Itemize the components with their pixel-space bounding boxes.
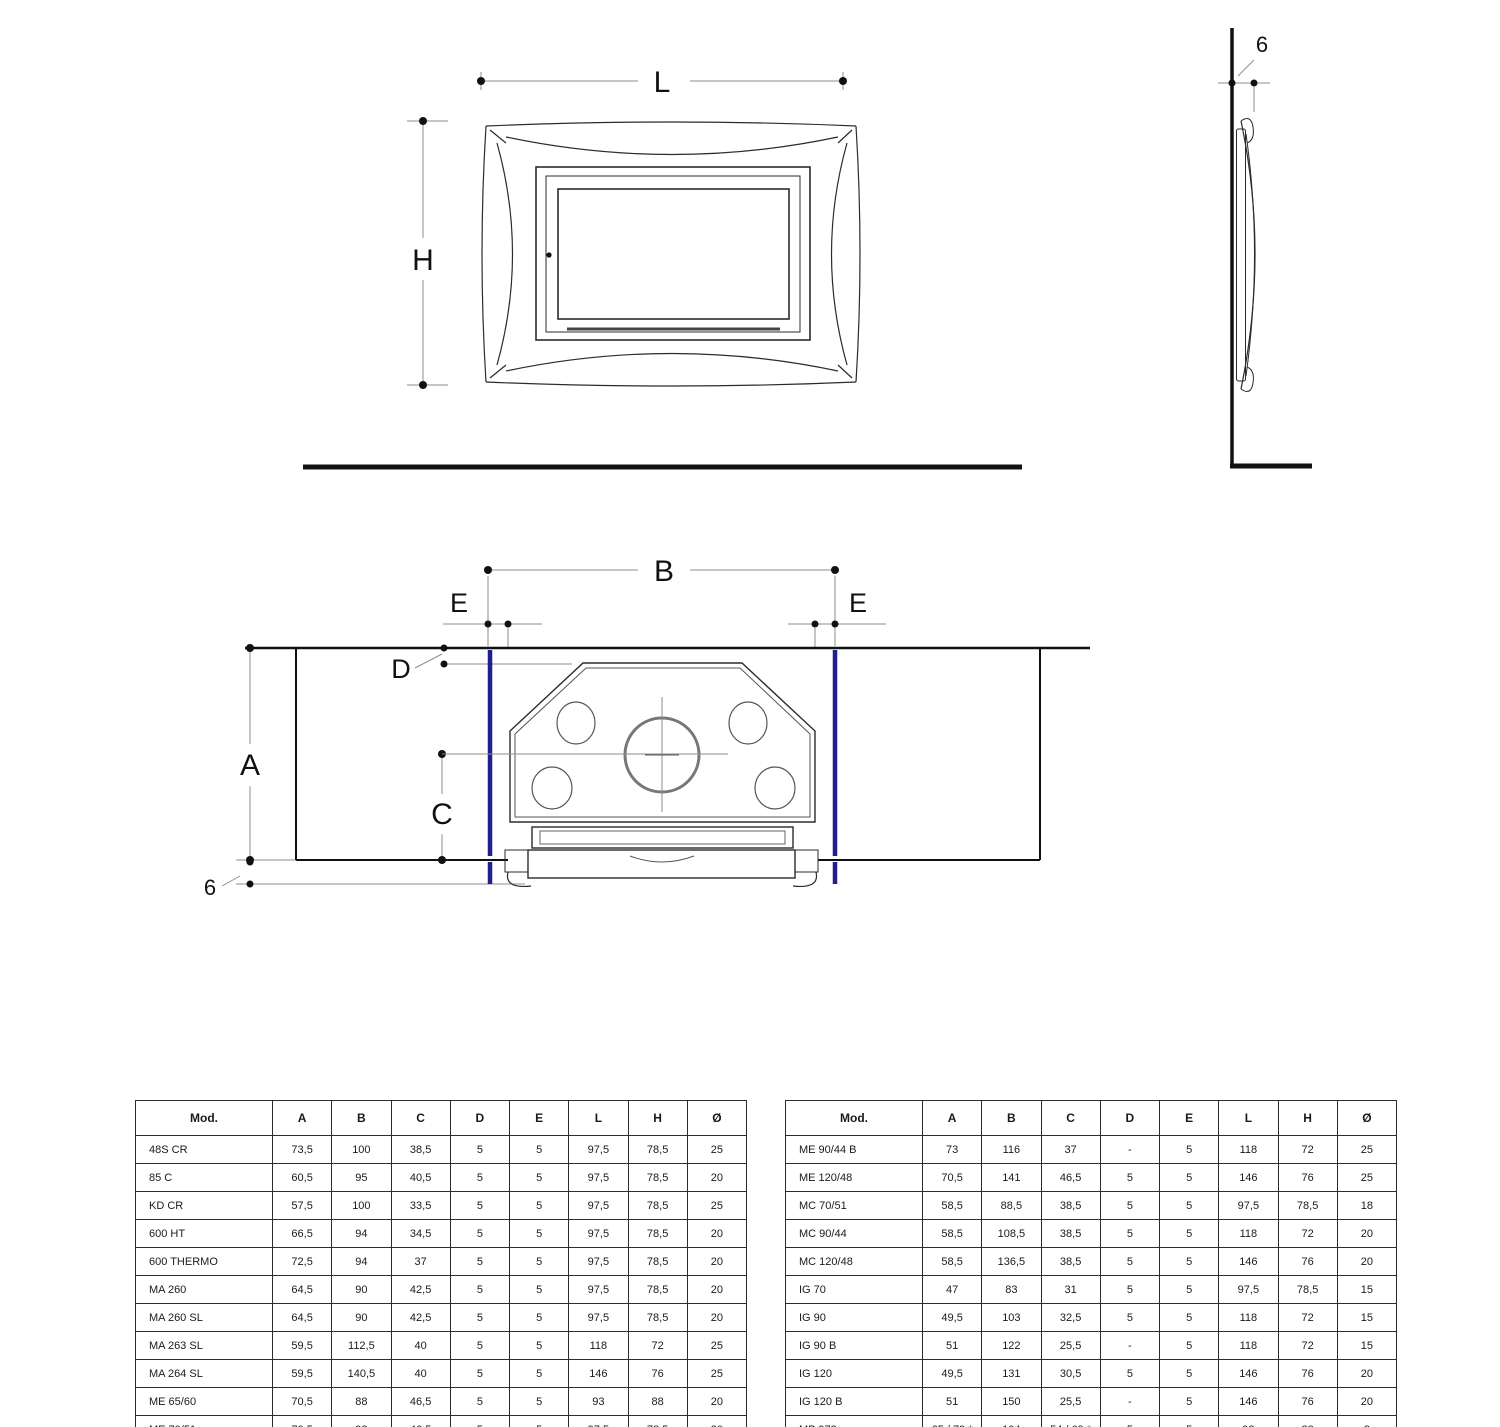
table-cell: 5 [510, 1388, 569, 1416]
section-D-label: D [391, 654, 411, 684]
table-cell: 118 [1219, 1136, 1278, 1164]
dimension-E-left [443, 621, 542, 649]
table-cell: 5 [510, 1360, 569, 1388]
table-cell: 15 [1337, 1276, 1396, 1304]
table-cell: 97,5 [569, 1164, 628, 1192]
table-cell: 112,5 [332, 1332, 391, 1360]
table-cell: 31 [1041, 1276, 1100, 1304]
door-frame [536, 167, 810, 340]
model-cell: IG 90 [786, 1304, 923, 1332]
model-cell: 600 THERMO [136, 1248, 273, 1276]
table-cell: 131 [982, 1360, 1041, 1388]
table-cell: 5 [510, 1416, 569, 1427]
table-cell: 5 [510, 1136, 569, 1164]
table-cell: 5 [510, 1276, 569, 1304]
column-header: D [1100, 1101, 1159, 1136]
spec-table-left-body: 48S CR73,510038,55597,578,52585 C60,5954… [136, 1136, 747, 1427]
table-cell: 72 [628, 1332, 687, 1360]
table-cell: 65 / 79 * [923, 1416, 982, 1427]
table-cell: 5 [450, 1220, 509, 1248]
table-cell: 25,5 [1041, 1332, 1100, 1360]
model-cell: 85 C [136, 1164, 273, 1192]
table-cell: 97,5 [569, 1192, 628, 1220]
table-row: KD CR57,510033,55597,578,525 [136, 1192, 747, 1220]
table-cell: 46,5 [391, 1416, 450, 1427]
table-cell: 46,5 [1041, 1164, 1100, 1192]
table-cell: 88 [628, 1388, 687, 1416]
table-cell: - [1100, 1332, 1159, 1360]
table-cell: 5 [1160, 1416, 1219, 1427]
table-cell: 97,5 [1219, 1192, 1278, 1220]
column-header: E [510, 1101, 569, 1136]
column-header: Ø [1337, 1101, 1396, 1136]
table-cell: 5 [1160, 1136, 1219, 1164]
table-cell: 38,5 [1041, 1220, 1100, 1248]
header-row: Mod.ABCDELHØ [136, 1101, 747, 1136]
section-B-label: B [654, 555, 674, 588]
table-cell: 66,5 [273, 1220, 332, 1248]
table-cell: 5 [510, 1332, 569, 1360]
table-cell: 57,5 [273, 1192, 332, 1220]
table-cell: 38,5 [391, 1136, 450, 1164]
table-cell: 5 [510, 1192, 569, 1220]
dimension-E-right [788, 621, 886, 649]
header-row: Mod.ABCDELHØ [786, 1101, 1397, 1136]
table-cell: 108,5 [982, 1220, 1041, 1248]
table-cell: 5 [510, 1248, 569, 1276]
table-cell: 146 [1219, 1248, 1278, 1276]
table-cell: 5 [1160, 1192, 1219, 1220]
table-cell: 76 [1278, 1164, 1337, 1192]
table-cell: 5 [450, 1388, 509, 1416]
table-cell: 20 [687, 1304, 746, 1332]
table-row: MP 97365 / 79 *10454 / 69 *5593888 [786, 1416, 1397, 1427]
column-header: C [391, 1101, 450, 1136]
table-cell: 78,5 [1278, 1276, 1337, 1304]
table-cell: 76 [628, 1360, 687, 1388]
table-cell: 5 [1160, 1164, 1219, 1192]
table-cell: 118 [1219, 1304, 1278, 1332]
table-row: IG 120 B5115025,5-51467620 [786, 1388, 1397, 1416]
model-cell: ME 90/44 B [786, 1136, 923, 1164]
front-height-label: H [412, 244, 434, 277]
table-cell: 76 [1278, 1248, 1337, 1276]
table-row: ME 65/6070,58846,555938820 [136, 1388, 747, 1416]
table-cell: 95 [332, 1164, 391, 1192]
table-cell: 5 [450, 1248, 509, 1276]
section-E-left-label: E [450, 588, 468, 618]
model-cell: MA 264 SL [136, 1360, 273, 1388]
model-cell: IG 120 B [786, 1388, 923, 1416]
model-cell: MC 70/51 [786, 1192, 923, 1220]
table-cell: 34,5 [391, 1220, 450, 1248]
column-header: H [1278, 1101, 1337, 1136]
column-header: D [450, 1101, 509, 1136]
table-cell: 25 [687, 1192, 746, 1220]
table-cell: 59,5 [273, 1360, 332, 1388]
table-cell: 20 [1337, 1360, 1396, 1388]
table-cell: 20 [687, 1388, 746, 1416]
table-cell: 97,5 [569, 1136, 628, 1164]
table-cell: 97,5 [1219, 1276, 1278, 1304]
table-cell: 51 [923, 1332, 982, 1360]
table-cell: 70,5 [273, 1416, 332, 1427]
side-offset-label: 6 [1256, 32, 1268, 57]
table-row: MA 26064,59042,55597,578,520 [136, 1276, 747, 1304]
model-cell: IG 70 [786, 1276, 923, 1304]
table-cell: 5 [1100, 1164, 1159, 1192]
table-cell: 72 [1278, 1136, 1337, 1164]
table-row: 85 C60,59540,55597,578,520 [136, 1164, 747, 1192]
model-cell: KD CR [136, 1192, 273, 1220]
table-cell: 5 [1160, 1388, 1219, 1416]
table-row: MC 120/4858,5136,538,5551467620 [786, 1248, 1397, 1276]
section-6-label: 6 [204, 875, 216, 900]
frame-side-profile [1237, 119, 1256, 392]
table-cell: 78,5 [628, 1192, 687, 1220]
section-view-drawing: B E E [204, 555, 1090, 900]
table-cell: - [1100, 1136, 1159, 1164]
table-cell: 25 [1337, 1164, 1396, 1192]
spec-table-left-header: Mod.ABCDELHØ [136, 1101, 747, 1136]
table-cell: 25 [687, 1332, 746, 1360]
table-cell: 76 [1278, 1388, 1337, 1416]
table-cell: 42,5 [391, 1276, 450, 1304]
table-cell: 100 [332, 1192, 391, 1220]
table-cell: 88 [332, 1388, 391, 1416]
table-cell: 72,5 [273, 1248, 332, 1276]
model-cell: MA 260 [136, 1276, 273, 1304]
table-cell: 25,5 [1041, 1388, 1100, 1416]
table-row: IG 90 B5112225,5-51187215 [786, 1332, 1397, 1360]
table-cell: 47 [923, 1276, 982, 1304]
table-cell: 5 [1100, 1248, 1159, 1276]
table-cell: 25 [687, 1136, 746, 1164]
table-cell: 146 [569, 1360, 628, 1388]
column-header: A [273, 1101, 332, 1136]
spec-table-right: Mod.ABCDELHØ ME 90/44 B7311637-51187225M… [785, 1100, 1397, 1427]
table-cell: 5 [510, 1220, 569, 1248]
column-header: H [628, 1101, 687, 1136]
table-cell: 122 [982, 1332, 1041, 1360]
table-cell: 116 [982, 1136, 1041, 1164]
table-row: MC 90/4458,5108,538,5551187220 [786, 1220, 1397, 1248]
table-cell: 78,5 [628, 1136, 687, 1164]
column-header: Ø [687, 1101, 746, 1136]
table-cell: 5 [510, 1164, 569, 1192]
column-header: Mod. [136, 1101, 273, 1136]
table-cell: 20 [1337, 1388, 1396, 1416]
model-cell: MC 120/48 [786, 1248, 923, 1276]
side-view-drawing: 6 [1218, 28, 1312, 468]
table-row: ME 120/4870,514146,5551467625 [786, 1164, 1397, 1192]
section-E-right-label: E [849, 588, 867, 618]
table-cell: 93 [569, 1388, 628, 1416]
ash-drawer-and-panel [505, 827, 818, 886]
table-cell: 20 [1337, 1248, 1396, 1276]
table-row: ME 70/5170,59246,55597,578,520 [136, 1416, 747, 1427]
spec-sheet-page: L H [0, 0, 1500, 1427]
section-A-label: A [240, 749, 260, 782]
model-cell: IG 120 [786, 1360, 923, 1388]
model-cell: MA 263 SL [136, 1332, 273, 1360]
table-cell: 146 [1219, 1360, 1278, 1388]
table-cell: 5 [450, 1416, 509, 1427]
table-row: 600 HT66,59434,55597,578,520 [136, 1220, 747, 1248]
table-cell: 20 [687, 1416, 746, 1427]
table-cell: 5 [450, 1360, 509, 1388]
table-cell: 78,5 [628, 1164, 687, 1192]
table-cell: 5 [450, 1192, 509, 1220]
table-cell: 78,5 [628, 1304, 687, 1332]
door-handle-dot [546, 252, 551, 257]
table-cell: 136,5 [982, 1248, 1041, 1276]
table-row: IG 12049,513130,5551467620 [786, 1360, 1397, 1388]
table-cell: 25 [1337, 1136, 1396, 1164]
table-cell: 73 [923, 1136, 982, 1164]
table-cell: 72 [1278, 1220, 1337, 1248]
table-cell: 32,5 [1041, 1304, 1100, 1332]
table-cell: 5 [1160, 1248, 1219, 1276]
table-cell: 103 [982, 1304, 1041, 1332]
table-cell: 40,5 [391, 1164, 450, 1192]
table-cell: 58,5 [923, 1192, 982, 1220]
model-cell: MP 973 [786, 1416, 923, 1427]
table-cell: 78,5 [628, 1248, 687, 1276]
table-cell: 88 [1278, 1416, 1337, 1427]
table-cell: 78,5 [628, 1416, 687, 1427]
table-cell: 40 [391, 1332, 450, 1360]
table-cell: 59,5 [273, 1332, 332, 1360]
table-cell: 118 [1219, 1220, 1278, 1248]
table-cell: 5 [1160, 1276, 1219, 1304]
model-cell: MC 90/44 [786, 1220, 923, 1248]
table-cell: 15 [1337, 1332, 1396, 1360]
table-cell: 54 / 69 * [1041, 1416, 1100, 1427]
table-cell: 90 [332, 1304, 391, 1332]
model-cell: MA 260 SL [136, 1304, 273, 1332]
table-cell: 49,5 [923, 1360, 982, 1388]
table-cell: 76 [1278, 1360, 1337, 1388]
table-cell: 49,5 [923, 1304, 982, 1332]
table-cell: 38,5 [1041, 1192, 1100, 1220]
table-cell: 97,5 [569, 1248, 628, 1276]
table-cell: 72 [1278, 1304, 1337, 1332]
section-C-label: C [431, 798, 453, 831]
table-cell: 15 [1337, 1304, 1396, 1332]
table-cell: 100 [332, 1136, 391, 1164]
table-cell: 88,5 [982, 1192, 1041, 1220]
spec-table-right-body: ME 90/44 B7311637-51187225ME 120/4870,51… [786, 1136, 1397, 1427]
table-cell: 97,5 [569, 1220, 628, 1248]
table-cell: 18 [1337, 1192, 1396, 1220]
table-cell: 73,5 [273, 1136, 332, 1164]
column-header: B [332, 1101, 391, 1136]
table-row: MA 260 SL64,59042,55597,578,520 [136, 1304, 747, 1332]
table-row: MA 263 SL59,5112,540551187225 [136, 1332, 747, 1360]
table-cell: 64,5 [273, 1304, 332, 1332]
table-row: ME 90/44 B7311637-51187225 [786, 1136, 1397, 1164]
table-cell: 8 [1337, 1416, 1396, 1427]
model-cell: IG 90 B [786, 1332, 923, 1360]
table-cell: 97,5 [569, 1304, 628, 1332]
front-view-drawing: L H [303, 66, 1022, 467]
column-header: L [569, 1101, 628, 1136]
table-cell: 42,5 [391, 1304, 450, 1332]
table-cell: 83 [982, 1276, 1041, 1304]
table-cell: 5 [1100, 1304, 1159, 1332]
model-cell: 48S CR [136, 1136, 273, 1164]
table-cell: - [1100, 1388, 1159, 1416]
table-cell: 20 [687, 1248, 746, 1276]
table-row: 600 THERMO72,594375597,578,520 [136, 1248, 747, 1276]
table-row: 48S CR73,510038,55597,578,525 [136, 1136, 747, 1164]
table-cell: 37 [1041, 1136, 1100, 1164]
table-cell: 140,5 [332, 1360, 391, 1388]
table-cell: 20 [687, 1220, 746, 1248]
spec-table-right-header: Mod.ABCDELHØ [786, 1101, 1397, 1136]
table-cell: 5 [450, 1304, 509, 1332]
technical-drawings: L H [0, 0, 1500, 1080]
table-cell: 72 [1278, 1332, 1337, 1360]
table-cell: 51 [923, 1388, 982, 1416]
table-cell: 97,5 [569, 1416, 628, 1427]
table-cell: 5 [450, 1164, 509, 1192]
table-cell: 20 [687, 1276, 746, 1304]
spec-table-left: Mod.ABCDELHØ 48S CR73,510038,55597,578,5… [135, 1100, 747, 1427]
table-cell: 141 [982, 1164, 1041, 1192]
table-cell: 70,5 [923, 1164, 982, 1192]
table-cell: 5 [1160, 1360, 1219, 1388]
table-cell: 5 [450, 1276, 509, 1304]
table-cell: 5 [1160, 1304, 1219, 1332]
table-cell: 78,5 [628, 1220, 687, 1248]
table-cell: 5 [1100, 1416, 1159, 1427]
table-cell: 5 [1160, 1332, 1219, 1360]
table-cell: 20 [687, 1164, 746, 1192]
table-row: IG 704783315597,578,515 [786, 1276, 1397, 1304]
table-cell: 64,5 [273, 1276, 332, 1304]
column-header: Mod. [786, 1101, 923, 1136]
table-cell: 146 [1219, 1388, 1278, 1416]
table-cell: 58,5 [923, 1248, 982, 1276]
dimension-6-side [1218, 60, 1270, 112]
table-cell: 46,5 [391, 1388, 450, 1416]
table-cell: 78,5 [628, 1276, 687, 1304]
table-cell: 38,5 [1041, 1248, 1100, 1276]
front-width-label: L [654, 66, 671, 99]
table-cell: 70,5 [273, 1388, 332, 1416]
column-header: L [1219, 1101, 1278, 1136]
table-cell: 118 [1219, 1332, 1278, 1360]
table-cell: 5 [1100, 1220, 1159, 1248]
column-header: A [923, 1101, 982, 1136]
frame-outline [482, 122, 860, 386]
table-cell: 5 [450, 1136, 509, 1164]
table-cell: 37 [391, 1248, 450, 1276]
table-cell: 146 [1219, 1164, 1278, 1192]
table-cell: 104 [982, 1416, 1041, 1427]
table-row: MC 70/5158,588,538,55597,578,518 [786, 1192, 1397, 1220]
table-cell: 5 [510, 1304, 569, 1332]
table-cell: 25 [687, 1360, 746, 1388]
column-header: B [982, 1101, 1041, 1136]
table-cell: 150 [982, 1388, 1041, 1416]
table-cell: 93 [1219, 1416, 1278, 1427]
table-cell: 60,5 [273, 1164, 332, 1192]
table-cell: 90 [332, 1276, 391, 1304]
table-cell: 5 [1100, 1276, 1159, 1304]
table-cell: 94 [332, 1220, 391, 1248]
table-cell: 30,5 [1041, 1360, 1100, 1388]
table-cell: 58,5 [923, 1220, 982, 1248]
firebox-body [442, 663, 815, 822]
table-cell: 40 [391, 1360, 450, 1388]
table-row: MA 264 SL59,5140,540551467625 [136, 1360, 747, 1388]
column-header: E [1160, 1101, 1219, 1136]
table-cell: 20 [1337, 1220, 1396, 1248]
table-cell: 5 [1100, 1360, 1159, 1388]
model-cell: ME 70/51 [136, 1416, 273, 1427]
table-cell: 118 [569, 1332, 628, 1360]
table-cell: 97,5 [569, 1276, 628, 1304]
table-cell: 33,5 [391, 1192, 450, 1220]
model-cell: ME 120/48 [786, 1164, 923, 1192]
model-cell: ME 65/60 [136, 1388, 273, 1416]
column-header: C [1041, 1101, 1100, 1136]
table-cell: 94 [332, 1248, 391, 1276]
table-row: IG 9049,510332,5551187215 [786, 1304, 1397, 1332]
table-cell: 5 [1160, 1220, 1219, 1248]
table-cell: 5 [450, 1332, 509, 1360]
table-cell: 5 [1100, 1192, 1159, 1220]
model-cell: 600 HT [136, 1220, 273, 1248]
table-cell: 92 [332, 1416, 391, 1427]
table-cell: 78,5 [1278, 1192, 1337, 1220]
